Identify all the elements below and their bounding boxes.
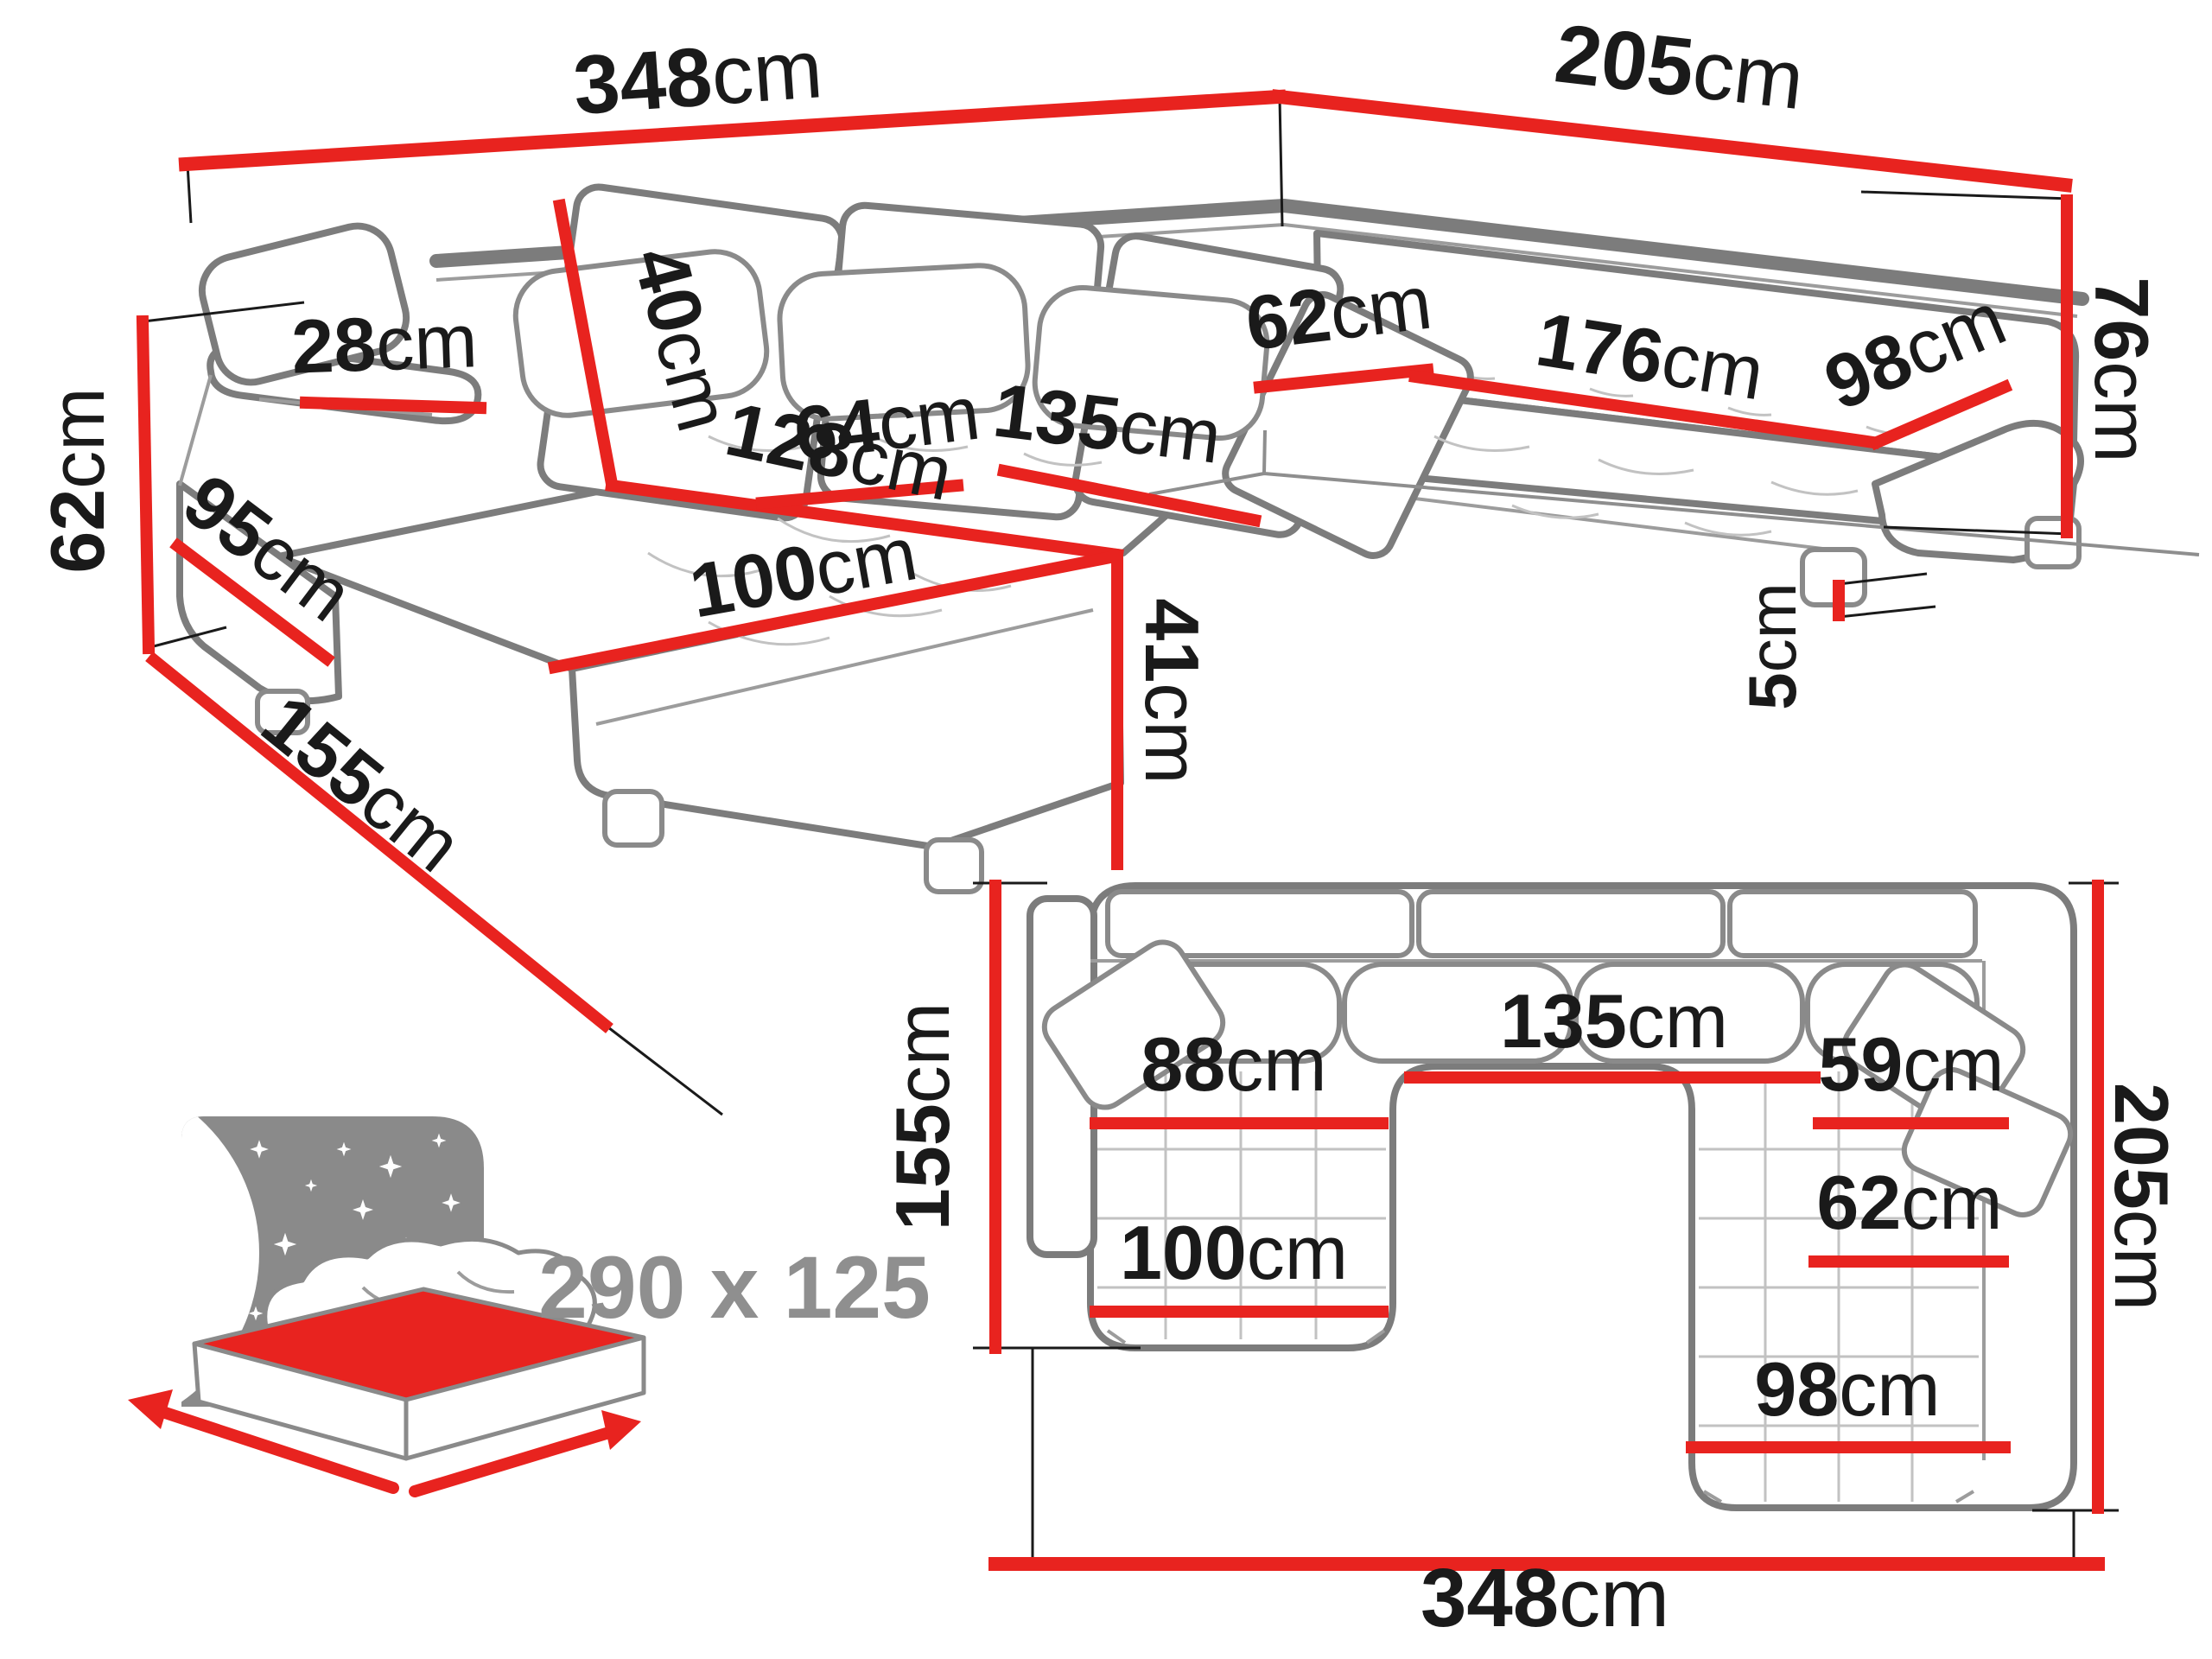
plan-view: 155cm 205cm 88cm 135cm 59cm 62cm 100cm 9… bbox=[880, 883, 2184, 1644]
plan-dim-right-lower: 62cm bbox=[1816, 1160, 2002, 1245]
plan-backrest-2 bbox=[1419, 892, 1723, 956]
sleeping-function-icon: 290 x 125 bbox=[0, 1071, 931, 1491]
dim-chaise-depth: 155cm bbox=[246, 678, 478, 888]
plan-dim-chaise-width: 100cm bbox=[1120, 1210, 1348, 1295]
dim-line-28 bbox=[306, 403, 480, 408]
plan-dim-center-seat: 135cm bbox=[1500, 978, 1728, 1064]
dim-leg-height: 5cm bbox=[1734, 582, 1810, 709]
chaise-foot-left bbox=[605, 791, 662, 845]
dim-seat-height: 41cm bbox=[1129, 598, 1215, 784]
plan-dim-chaise-depth: 155cm bbox=[880, 1002, 965, 1230]
width-arrowhead bbox=[601, 1410, 641, 1450]
dim-total-height: 76cm bbox=[2079, 276, 2164, 462]
plan-backrest-3 bbox=[1730, 892, 1975, 956]
plan-dim-total-depth: 205cm bbox=[2099, 1083, 2184, 1311]
dim-armrest-height: 62cm bbox=[35, 387, 120, 573]
plan-dim-corner-seat: 98cm bbox=[1754, 1346, 1940, 1432]
diagram-canvas: 348cm 205cm 76cm 62cm 155cm 95cm 28cm 40… bbox=[0, 0, 2212, 1659]
dim-back-width: 348cm bbox=[570, 22, 825, 132]
plan-dim-total-width: 348cm bbox=[1421, 1552, 1669, 1644]
plan-dim-chaise-seat: 88cm bbox=[1141, 1021, 1326, 1107]
length-arrowhead bbox=[128, 1389, 173, 1429]
sofa-dimension-diagram: 348cm 205cm 76cm 62cm 155cm 95cm 28cm 40… bbox=[0, 0, 2212, 1659]
perspective-sofa-drawing bbox=[180, 184, 2199, 892]
sleeping-area-size: 290 x 125 bbox=[538, 1238, 931, 1337]
dim-armrest-top: 28cm bbox=[290, 297, 480, 389]
plan-dim-right-upper: 59cm bbox=[1818, 1021, 2004, 1107]
dim-right-length: 205cm bbox=[1550, 7, 1808, 127]
dim-line-62-left bbox=[143, 321, 149, 648]
